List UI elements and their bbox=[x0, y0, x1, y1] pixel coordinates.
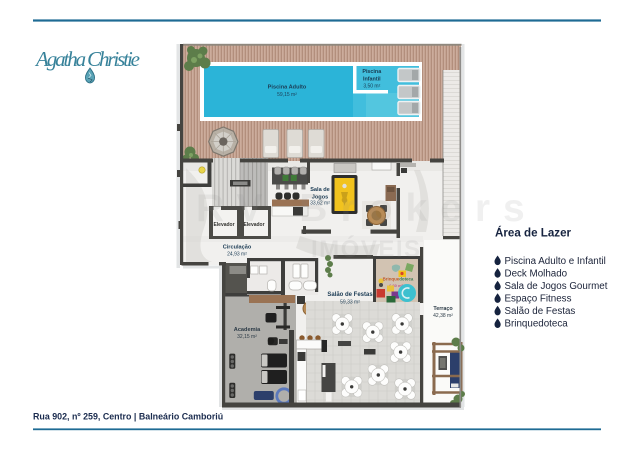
svg-text:3,50 m²: 3,50 m² bbox=[363, 84, 380, 90]
svg-text:Piscina: Piscina bbox=[362, 69, 382, 75]
svg-text:Salão de Festas: Salão de Festas bbox=[327, 292, 373, 298]
svg-text:Piscina Adulto: Piscina Adulto bbox=[268, 85, 307, 91]
svg-text:Área de Lazer: Área de Lazer bbox=[495, 227, 572, 240]
svg-text:Brinquedoteca: Brinquedoteca bbox=[505, 319, 569, 330]
svg-text:59,33 m²: 59,33 m² bbox=[340, 300, 360, 306]
svg-text:Agatha Christie: Agatha Christie bbox=[34, 47, 140, 71]
svg-text:42,38 m²: 42,38 m² bbox=[433, 313, 453, 319]
svg-text:59,15 m²: 59,15 m² bbox=[277, 92, 297, 98]
svg-text:IMÓVEIS: IMÓVEIS bbox=[311, 235, 422, 263]
svg-text:Infantil: Infantil bbox=[363, 77, 381, 83]
svg-text:Espaço Fitness: Espaço Fitness bbox=[505, 294, 572, 305]
svg-text:Sala de Jogos Gourmet: Sala de Jogos Gourmet bbox=[505, 281, 608, 292]
svg-text:Rua 902, nº 259, Centro | Baln: Rua 902, nº 259, Centro | Balneário Camb… bbox=[33, 412, 223, 422]
svg-text:Academia: Academia bbox=[234, 327, 261, 333]
svg-text:32,15 m²: 32,15 m² bbox=[237, 334, 257, 340]
svg-text:Terraço: Terraço bbox=[433, 306, 453, 312]
svg-text:RV Brokers: RV Brokers bbox=[196, 187, 538, 230]
svg-text:Deck Molhado: Deck Molhado bbox=[505, 268, 568, 279]
svg-text:Piscina Adulto e Infantil: Piscina Adulto e Infantil bbox=[505, 256, 606, 267]
svg-text:Brinquedoteca: Brinquedoteca bbox=[383, 277, 414, 282]
svg-text:Circulação: Circulação bbox=[223, 245, 252, 251]
svg-text:Salão de Festas: Salão de Festas bbox=[505, 306, 576, 317]
svg-text:24,93 m²: 24,93 m² bbox=[227, 252, 247, 258]
